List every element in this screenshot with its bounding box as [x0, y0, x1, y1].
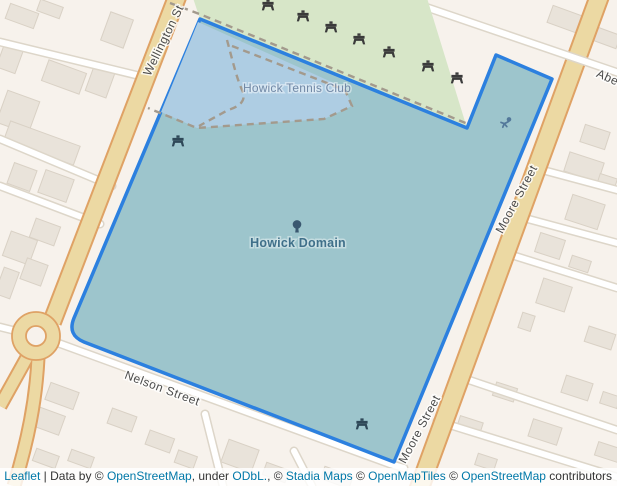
attribution-text: ©	[446, 469, 462, 483]
map-canvas[interactable]: Wellington St Moore Street Moore Street …	[0, 0, 617, 486]
openstreetmap-link[interactable]: OpenStreetMap	[107, 469, 192, 483]
odbl-link[interactable]: ODbL.	[232, 469, 267, 483]
poi-label-howick-domain: Howick Domain	[250, 236, 346, 250]
attribution-text: contributors	[546, 469, 612, 483]
attribution-text: | Data by ©	[40, 469, 107, 483]
roundabout-island	[26, 326, 46, 346]
attribution-bar: Leaflet | Data by © OpenStreetMap, under…	[0, 468, 617, 486]
attribution-text: , ©	[267, 469, 286, 483]
stadia-maps-link[interactable]: Stadia Maps	[286, 469, 353, 483]
poi-label-tennis-club: Howick Tennis Club	[243, 81, 351, 95]
openstreetmap-link[interactable]: OpenStreetMap	[461, 469, 546, 483]
openmaptiles-link[interactable]: OpenMapTiles	[368, 469, 446, 483]
map-page: { "map": { "poi_labels": { "tennis_club"…	[0, 0, 617, 486]
leaflet-link[interactable]: Leaflet	[4, 469, 40, 483]
attribution-text: , under	[192, 469, 233, 483]
attribution-text: ©	[353, 469, 369, 483]
